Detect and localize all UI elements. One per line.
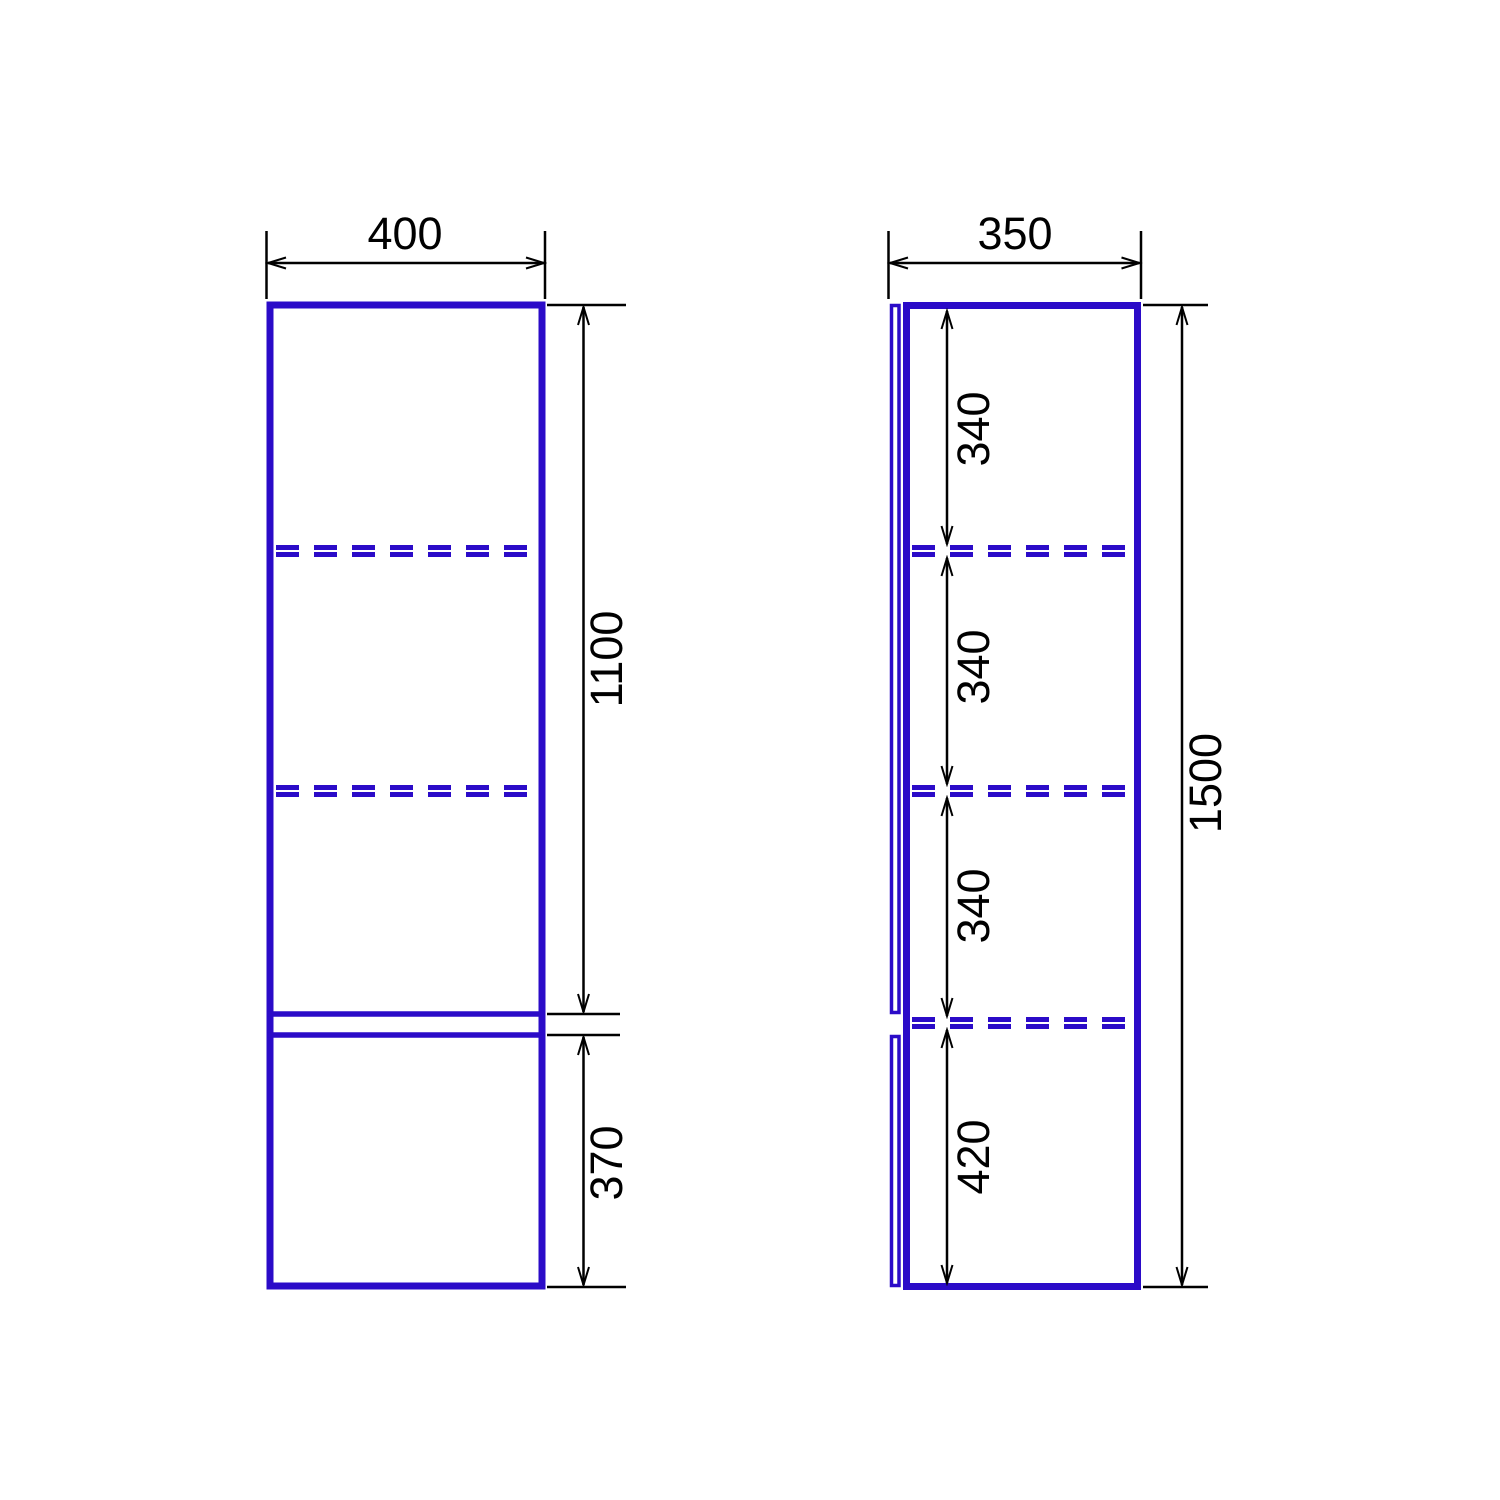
dim-side-section-3: 340 [947,798,999,1016]
dim-side-total-label: 1500 [1180,733,1231,833]
side-shelf-dashed-3 [912,1020,1132,1027]
dim-side-section-2-label: 340 [948,629,999,704]
dim-side-depth-label: 350 [977,208,1052,259]
dim-front-width: 400 [267,208,546,299]
dim-side-section-4-label: 420 [948,1119,999,1194]
dim-side-section-2: 340 [947,558,999,784]
drawing-canvas: 400 1100 370 [0,0,1500,1500]
dim-side-section-3-label: 340 [948,868,999,943]
dim-front-lower-label: 370 [581,1125,632,1200]
cabinet-technical-drawing: 400 1100 370 [0,0,1500,1500]
dim-side-depth: 350 [889,208,1142,299]
dim-front-lower-height: 370 [547,1035,632,1287]
front-shelf-dashed-1 [276,548,537,555]
dim-front-width-label: 400 [367,208,442,259]
dim-side-total-height: 1500 [1143,305,1231,1287]
dim-side-section-1: 340 [947,311,999,544]
side-shelf-dashed-2 [912,788,1132,795]
dim-front-upper-label: 1100 [581,611,632,708]
dim-front-upper-height: 1100 [547,305,632,1014]
dim-side-section-4: 420 [947,1030,999,1283]
front-view: 400 1100 370 [267,208,633,1287]
side-lower-door-panel [892,1037,900,1286]
front-shelf-dashed-2 [276,788,537,795]
side-shelf-dashed-1 [912,548,1132,555]
side-view: 350 340 340 340 420 1500 [889,208,1232,1287]
side-upper-door-panel [892,306,900,1013]
dim-side-section-1-label: 340 [948,391,999,466]
